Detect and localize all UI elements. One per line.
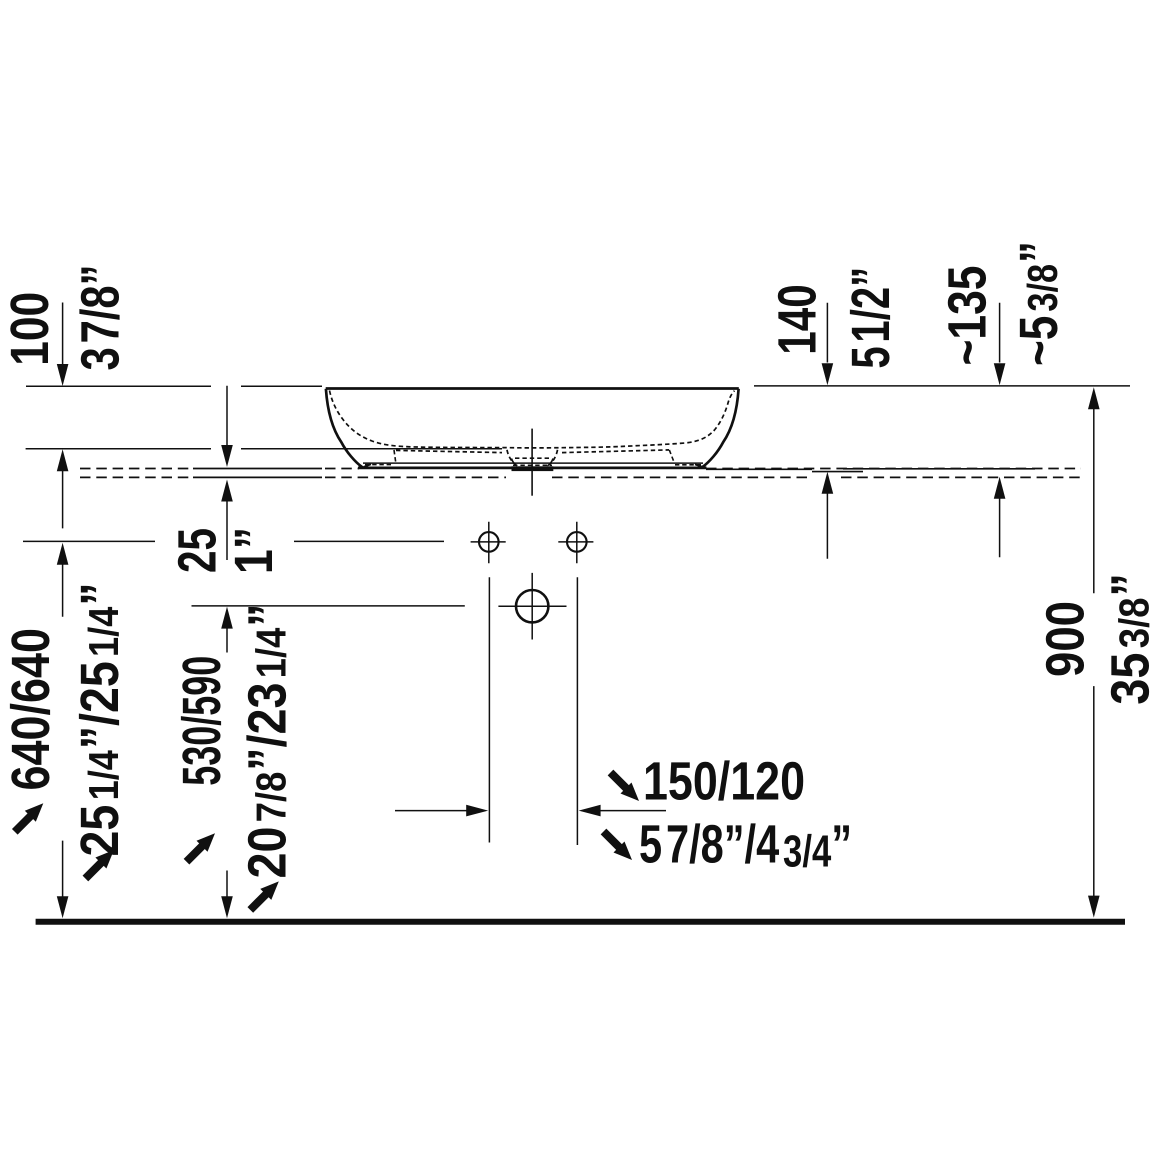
svg-text:1”: 1” [224, 527, 284, 574]
svg-text:353/8”: 353/8” [1101, 573, 1161, 705]
svg-text:900: 900 [1035, 601, 1095, 677]
svg-text:207/8”/231/4”: 207/8”/231/4” [238, 604, 298, 879]
svg-text:51/2”: 51/2” [841, 267, 901, 369]
svg-text:~135: ~135 [938, 266, 998, 366]
svg-text:25: 25 [168, 528, 228, 573]
svg-text:251/4”/251/4”: 251/4”/251/4” [70, 583, 130, 857]
svg-text:57/8”/43/4”: 57/8”/43/4” [639, 815, 852, 877]
svg-text:530/590: 530/590 [172, 656, 232, 786]
svg-text:150/120: 150/120 [643, 752, 805, 812]
svg-text:140: 140 [768, 284, 828, 355]
svg-text:37/8”: 37/8” [71, 265, 131, 371]
svg-text:~53/8”: ~53/8” [1009, 241, 1069, 366]
svg-text:640/640: 640/640 [1, 628, 61, 791]
svg-text:100: 100 [0, 292, 60, 366]
